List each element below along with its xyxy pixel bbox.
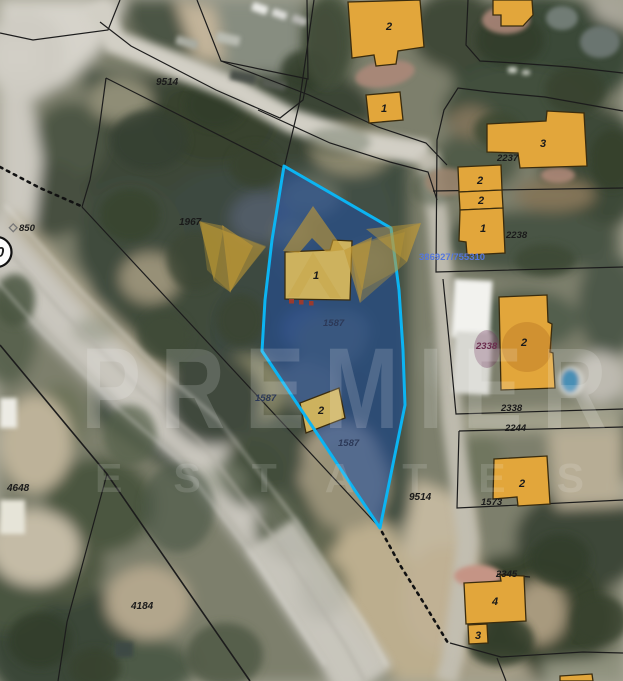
svg-text:1967: 1967 (179, 217, 202, 228)
svg-text:ESTATES: ESTATES (95, 455, 623, 501)
svg-text:3: 3 (475, 630, 481, 642)
svg-text:3: 3 (540, 138, 546, 150)
svg-text:2338: 2338 (475, 341, 498, 352)
svg-text:1: 1 (480, 223, 486, 235)
svg-text:9514: 9514 (156, 77, 179, 88)
svg-text:2: 2 (518, 478, 525, 490)
svg-text:1587: 1587 (338, 438, 360, 449)
svg-text:9514: 9514 (409, 492, 432, 503)
svg-text:2: 2 (476, 175, 483, 187)
svg-text:2237: 2237 (496, 153, 519, 164)
svg-text:1587: 1587 (323, 318, 345, 329)
svg-text:1: 1 (313, 270, 319, 282)
svg-text:2: 2 (317, 405, 324, 417)
svg-text:2: 2 (520, 337, 527, 349)
svg-text:4: 4 (491, 596, 498, 608)
svg-text:70: 70 (0, 245, 4, 261)
svg-text:1573: 1573 (481, 497, 503, 508)
svg-text:2: 2 (477, 195, 484, 207)
svg-text:PREMIER: PREMIER (81, 324, 623, 452)
svg-text:4648: 4648 (6, 483, 30, 494)
svg-text:2: 2 (385, 21, 392, 33)
svg-text:386927/755310: 386927/755310 (419, 252, 485, 263)
svg-text:2244: 2244 (504, 423, 527, 434)
svg-text:2338: 2338 (500, 403, 523, 414)
svg-text:850: 850 (19, 223, 36, 234)
svg-text:2238: 2238 (505, 230, 528, 241)
svg-text:1: 1 (381, 103, 387, 115)
svg-text:1587: 1587 (255, 393, 277, 404)
svg-text:4184: 4184 (130, 601, 154, 612)
svg-text:2345: 2345 (495, 569, 518, 580)
